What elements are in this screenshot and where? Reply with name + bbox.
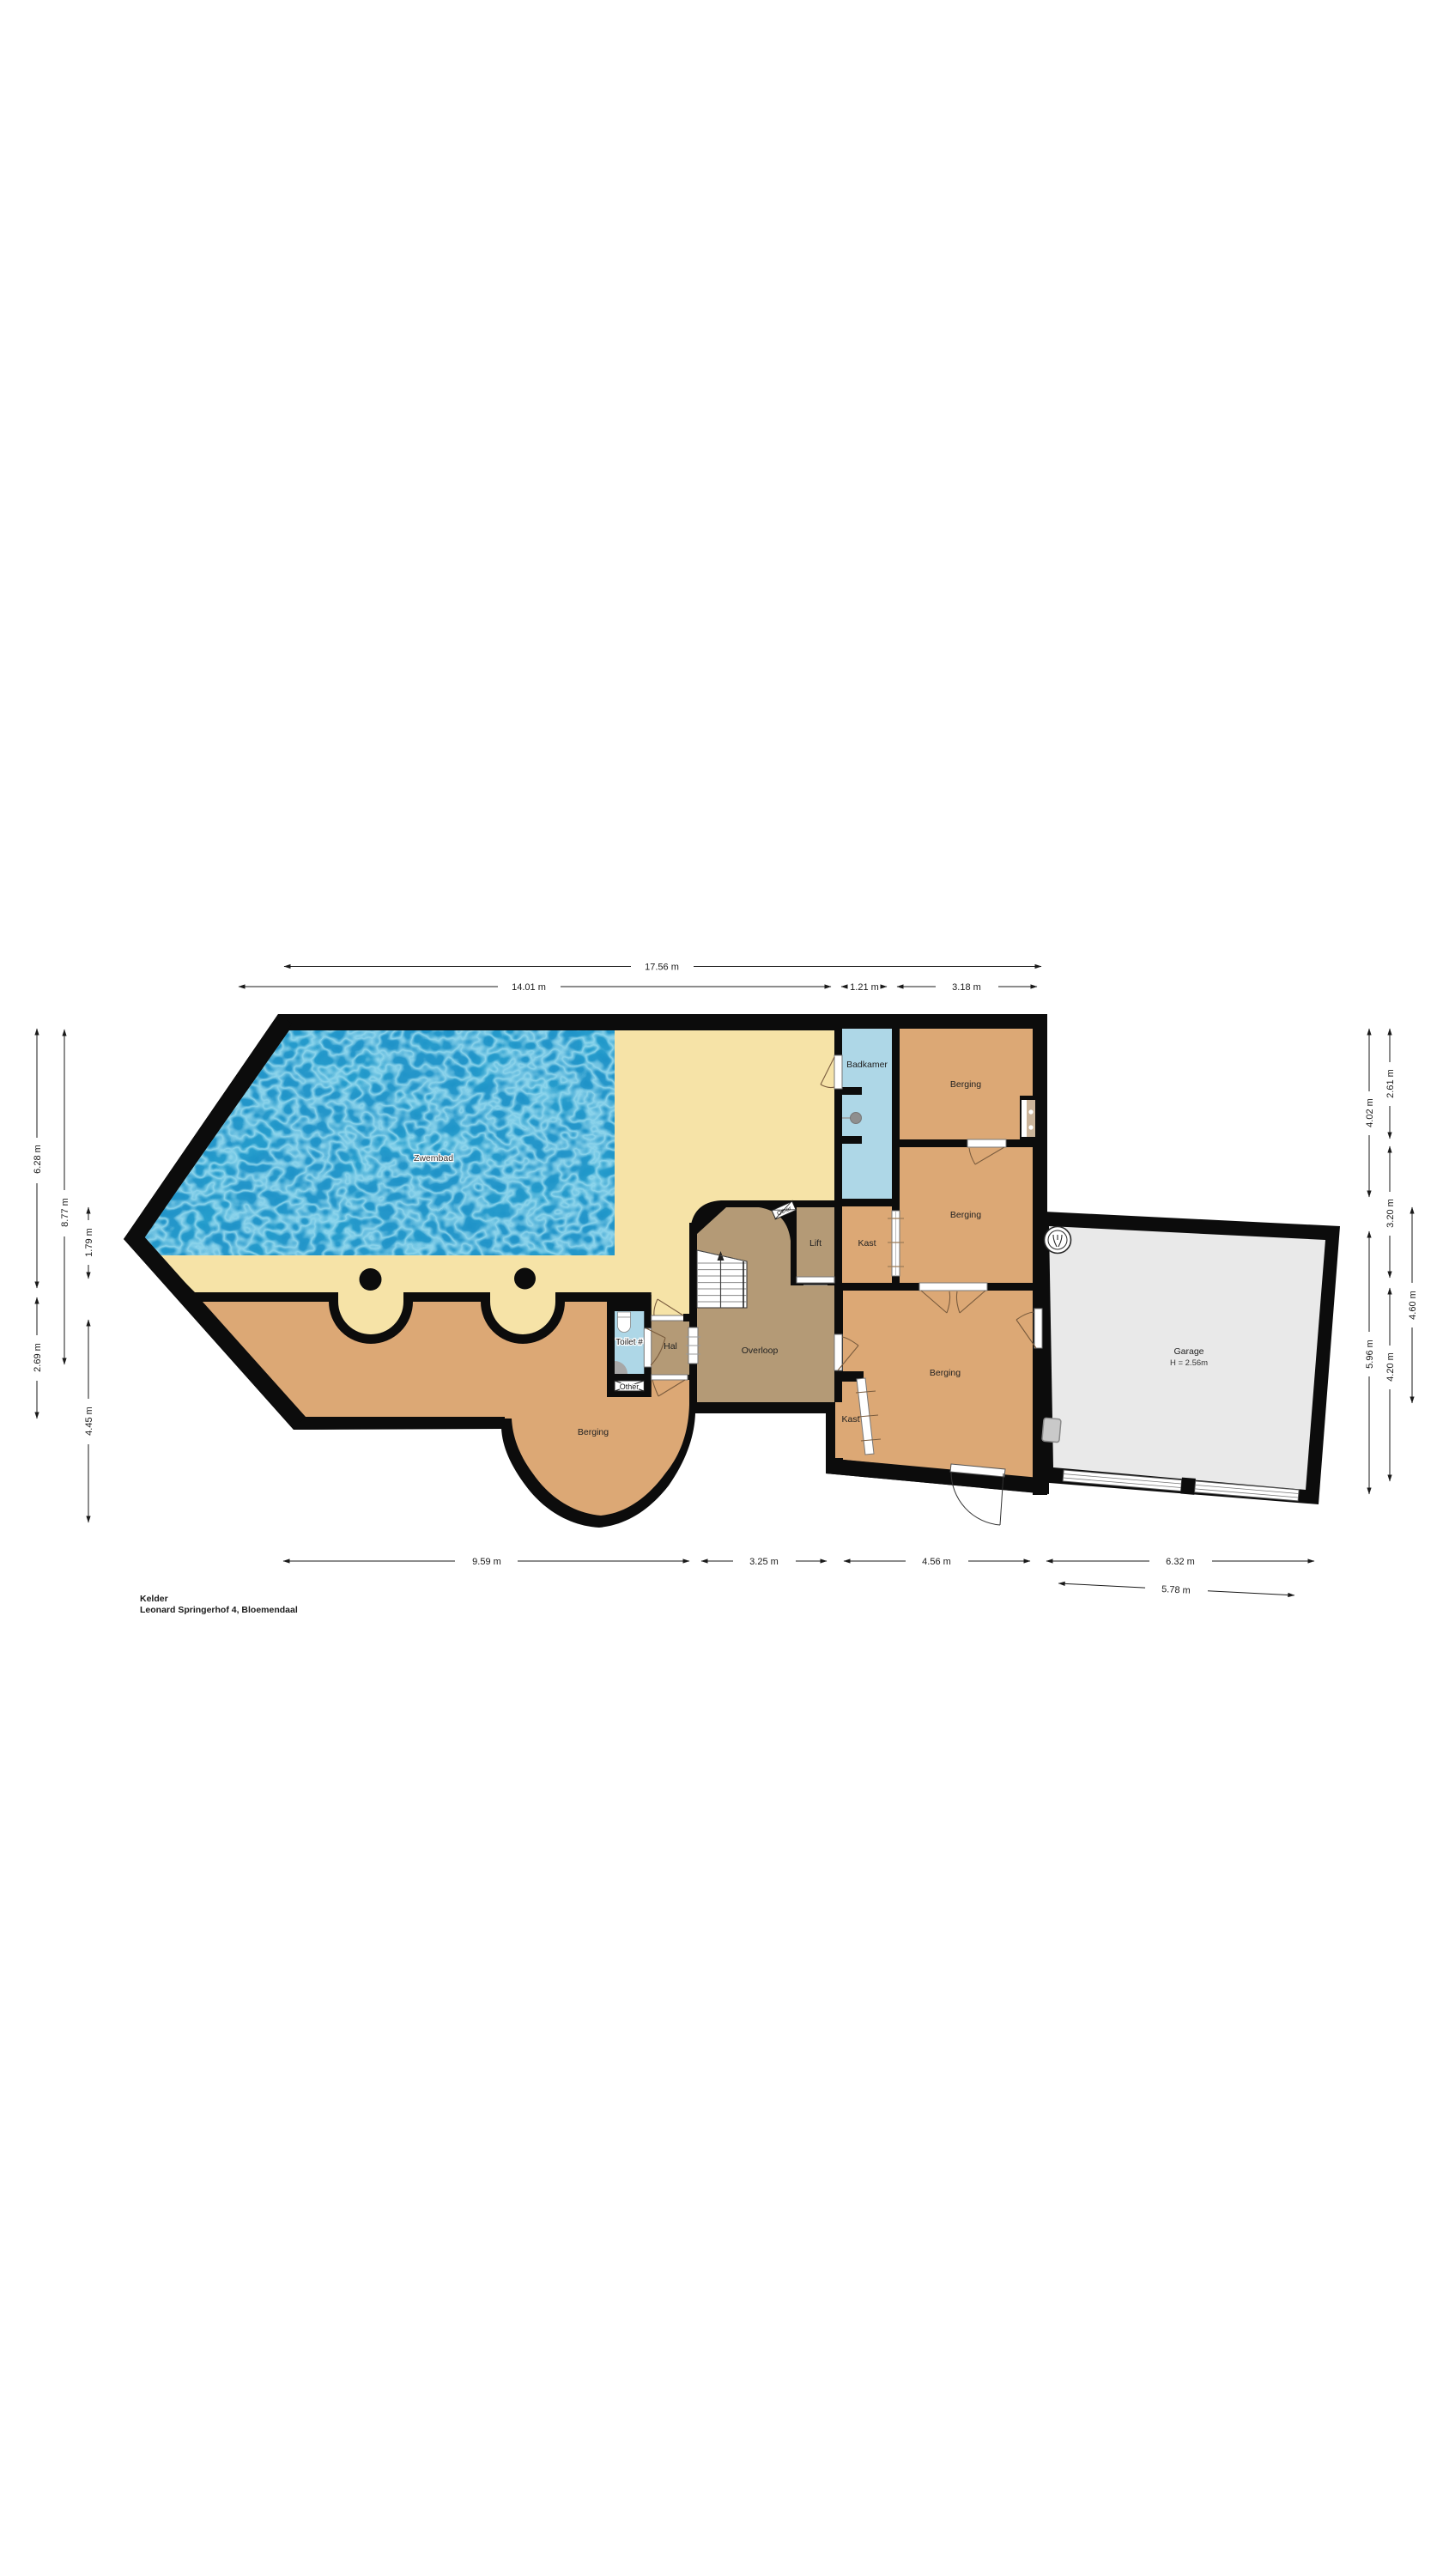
svg-text:Leonard Springerhof 4, Bloemen: Leonard Springerhof 4, Bloemendaal (140, 1605, 298, 1615)
svg-text:3.18 m: 3.18 m (952, 982, 981, 993)
svg-text:1.21 m: 1.21 m (850, 982, 879, 993)
svg-text:Berging: Berging (950, 1079, 981, 1090)
svg-text:8.77 m: 8.77 m (60, 1198, 70, 1227)
svg-text:6.32 m: 6.32 m (1166, 1557, 1195, 1567)
svg-text:Berging: Berging (578, 1427, 609, 1437)
svg-text:Kast: Kast (841, 1414, 859, 1425)
svg-text:17.56 m: 17.56 m (645, 963, 679, 973)
svg-text:3.25 m: 3.25 m (749, 1557, 779, 1567)
svg-text:9.59 m: 9.59 m (472, 1557, 501, 1567)
svg-text:Garage: Garage (1173, 1346, 1203, 1357)
svg-text:Other: Other (620, 1382, 640, 1391)
svg-text:Kast: Kast (858, 1238, 876, 1249)
svg-text:Berging: Berging (930, 1368, 961, 1378)
svg-text:6.28 m: 6.28 m (33, 1145, 43, 1174)
svg-text:4.20 m: 4.20 m (1385, 1352, 1396, 1382)
svg-text:H = 2.56m: H = 2.56m (1170, 1358, 1208, 1368)
svg-text:Lift: Lift (809, 1238, 822, 1249)
svg-text:Berging: Berging (950, 1210, 981, 1220)
svg-text:4.56 m: 4.56 m (922, 1557, 951, 1567)
svg-text:3.20 m: 3.20 m (1385, 1199, 1396, 1228)
svg-text:2.61 m: 2.61 m (1385, 1069, 1396, 1098)
svg-text:Kelder: Kelder (140, 1594, 168, 1604)
svg-text:Zwembad: Zwembad (414, 1153, 453, 1163)
svg-text:Hal: Hal (664, 1341, 677, 1352)
svg-text:4.45 m: 4.45 m (84, 1406, 94, 1436)
svg-text:Toilet #: Toilet # (615, 1338, 643, 1347)
svg-text:4.60 m: 4.60 m (1408, 1291, 1418, 1320)
svg-text:Overloop: Overloop (742, 1346, 779, 1356)
svg-text:1.79 m: 1.79 m (84, 1228, 94, 1257)
svg-text:2.69 m: 2.69 m (33, 1343, 43, 1372)
svg-text:Badkamer: Badkamer (846, 1060, 888, 1070)
svg-text:5.78 m: 5.78 m (1161, 1584, 1191, 1596)
svg-text:14.01 m: 14.01 m (512, 982, 546, 993)
svg-text:5.96 m: 5.96 m (1365, 1340, 1375, 1369)
svg-text:4.02 m: 4.02 m (1365, 1098, 1375, 1127)
